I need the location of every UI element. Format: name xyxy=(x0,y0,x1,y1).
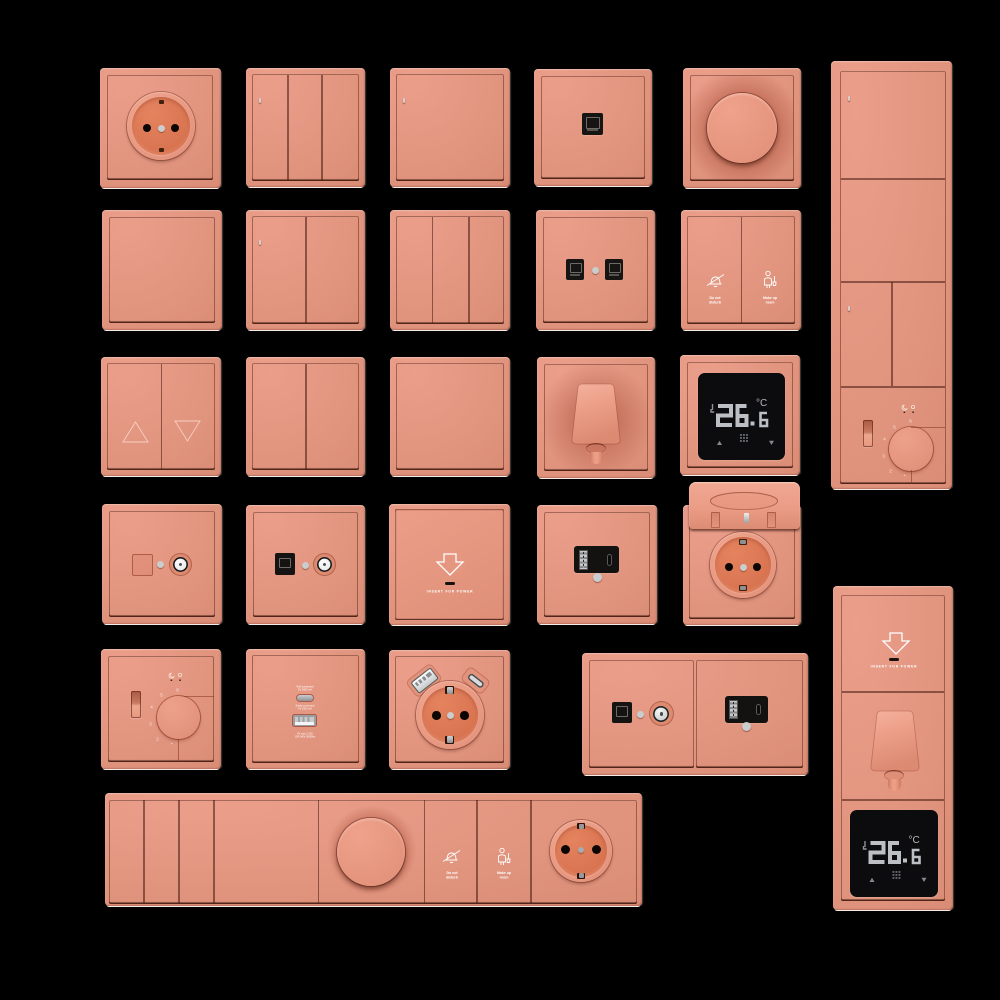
svg-text:°C: °C xyxy=(756,398,767,409)
svg-text:°C: °C xyxy=(909,835,920,846)
